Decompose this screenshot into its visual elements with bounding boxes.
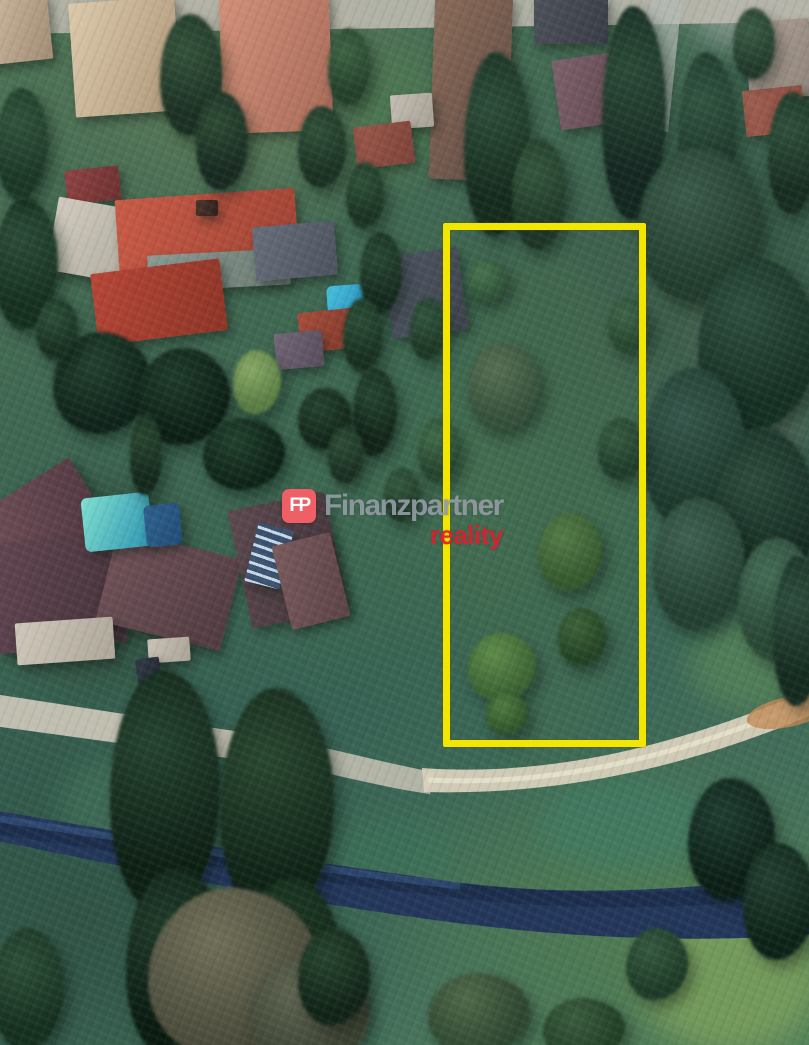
chimney-shadow [196, 200, 218, 216]
watermark-brand-text: Finanzpartner [324, 491, 503, 521]
wall-white-a [15, 617, 116, 666]
watermark-subbrand-text: reality [430, 522, 503, 548]
shed-purple-gray-mid [274, 330, 325, 370]
logo-monogram: FP [289, 495, 308, 517]
finanzpartner-logo-icon: FP [282, 489, 316, 523]
pool-dark-panel [143, 502, 183, 548]
watermark-text-block: Finanzpartner reality [324, 491, 503, 548]
tree [428, 973, 530, 1045]
tree [743, 843, 809, 960]
shed-gray-blue [252, 221, 338, 282]
watermark-finanzpartner-reality: FP Finanzpartner reality [282, 489, 503, 548]
house-beige-partial [0, 0, 53, 65]
pool-covered [80, 492, 153, 553]
property-boundary-outline [443, 223, 646, 747]
building-dark [534, 0, 608, 44]
listing-aerial-photo: FP Finanzpartner reality [0, 0, 809, 1045]
